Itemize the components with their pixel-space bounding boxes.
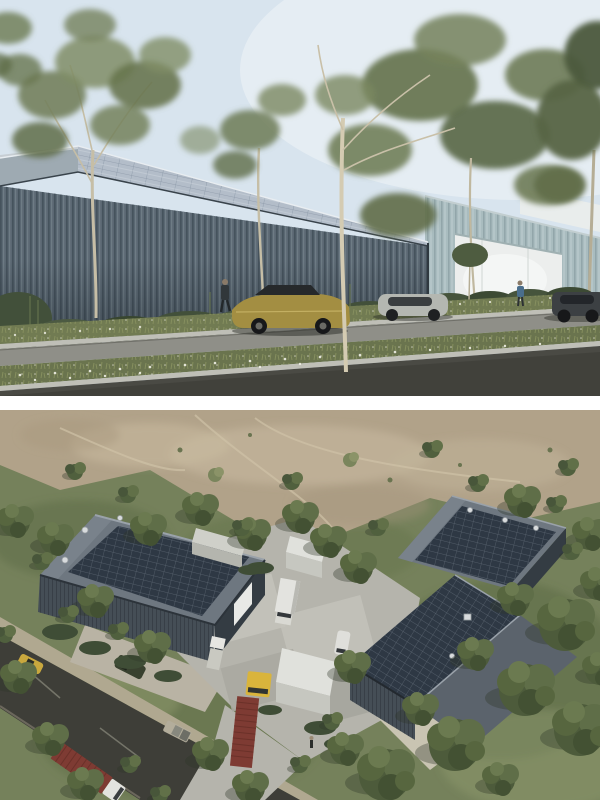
aerial-view-render — [0, 410, 600, 800]
car-dark — [544, 292, 600, 323]
car-windows — [388, 297, 432, 306]
street-view-render — [0, 0, 600, 396]
person-courtyard — [310, 736, 314, 748]
car-silver — [373, 294, 453, 321]
image-divider — [0, 396, 600, 410]
car-windows — [560, 295, 594, 304]
aerial-view-canvas — [0, 410, 600, 800]
street-view-canvas — [0, 0, 600, 396]
render-board — [0, 0, 600, 800]
